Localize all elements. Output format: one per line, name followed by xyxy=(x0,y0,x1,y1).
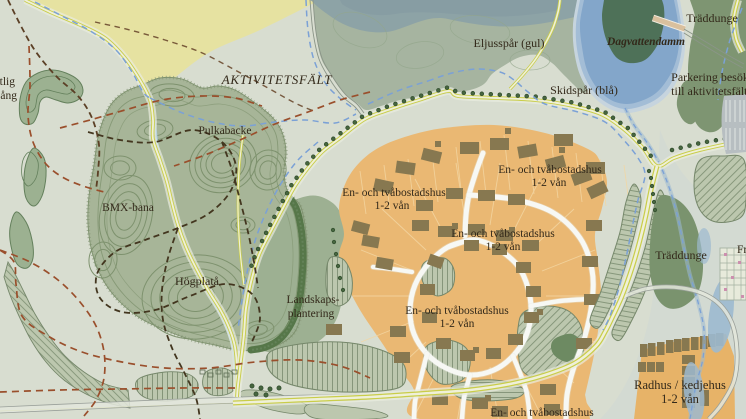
svg-text:En- och tvåbostadshus: En- och tvåbostadshus xyxy=(405,304,509,317)
svg-text:Pulkabacke: Pulkabacke xyxy=(198,125,251,137)
svg-text:En- och tvåbostadshus: En- och tvåbostadshus xyxy=(490,406,594,419)
svg-text:Träddunge: Träddunge xyxy=(655,248,707,262)
svg-text:Fr: Fr xyxy=(737,244,746,256)
svg-text:Parkering besök: Parkering besök xyxy=(671,70,746,84)
svg-text:En- och tvåbostadshus: En- och tvåbostadshus xyxy=(498,163,602,176)
svg-text:Skidspår (blå): Skidspår (blå) xyxy=(550,83,618,97)
svg-text:1-2 vån: 1-2 vån xyxy=(440,317,475,330)
svg-text:Högplatå: Högplatå xyxy=(175,274,220,288)
svg-text:1-2 vån: 1-2 vån xyxy=(375,199,410,212)
svg-text:Landskaps-: Landskaps- xyxy=(286,294,339,306)
svg-text:En- och tvåbostadshus: En- och tvåbostadshus xyxy=(342,186,446,199)
svg-text:till aktivitetsfälte: till aktivitetsfälte xyxy=(671,84,746,98)
svg-text:Eljusspår (gul): Eljusspår (gul) xyxy=(474,36,545,50)
svg-text:Träddunge: Träddunge xyxy=(686,11,738,25)
svg-text:tlig: tlig xyxy=(0,76,15,88)
svg-text:En- och tvåbostadshus: En- och tvåbostadshus xyxy=(451,227,555,240)
svg-text:1-2 vån: 1-2 vån xyxy=(532,176,567,189)
svg-text:AKTIVITETSFÄLT: AKTIVITETSFÄLT xyxy=(221,72,333,87)
svg-text:ång: ång xyxy=(0,89,17,102)
svg-text:BMX-bana: BMX-bana xyxy=(102,202,154,214)
svg-text:1-2 vån: 1-2 vån xyxy=(661,392,700,406)
svg-text:1-2 vån: 1-2 vån xyxy=(486,240,521,253)
svg-text:Dagvattendamm: Dagvattendamm xyxy=(606,36,685,48)
svg-text:Radhus / kedjehus: Radhus / kedjehus xyxy=(634,378,726,392)
svg-text:plantering: plantering xyxy=(288,308,335,320)
